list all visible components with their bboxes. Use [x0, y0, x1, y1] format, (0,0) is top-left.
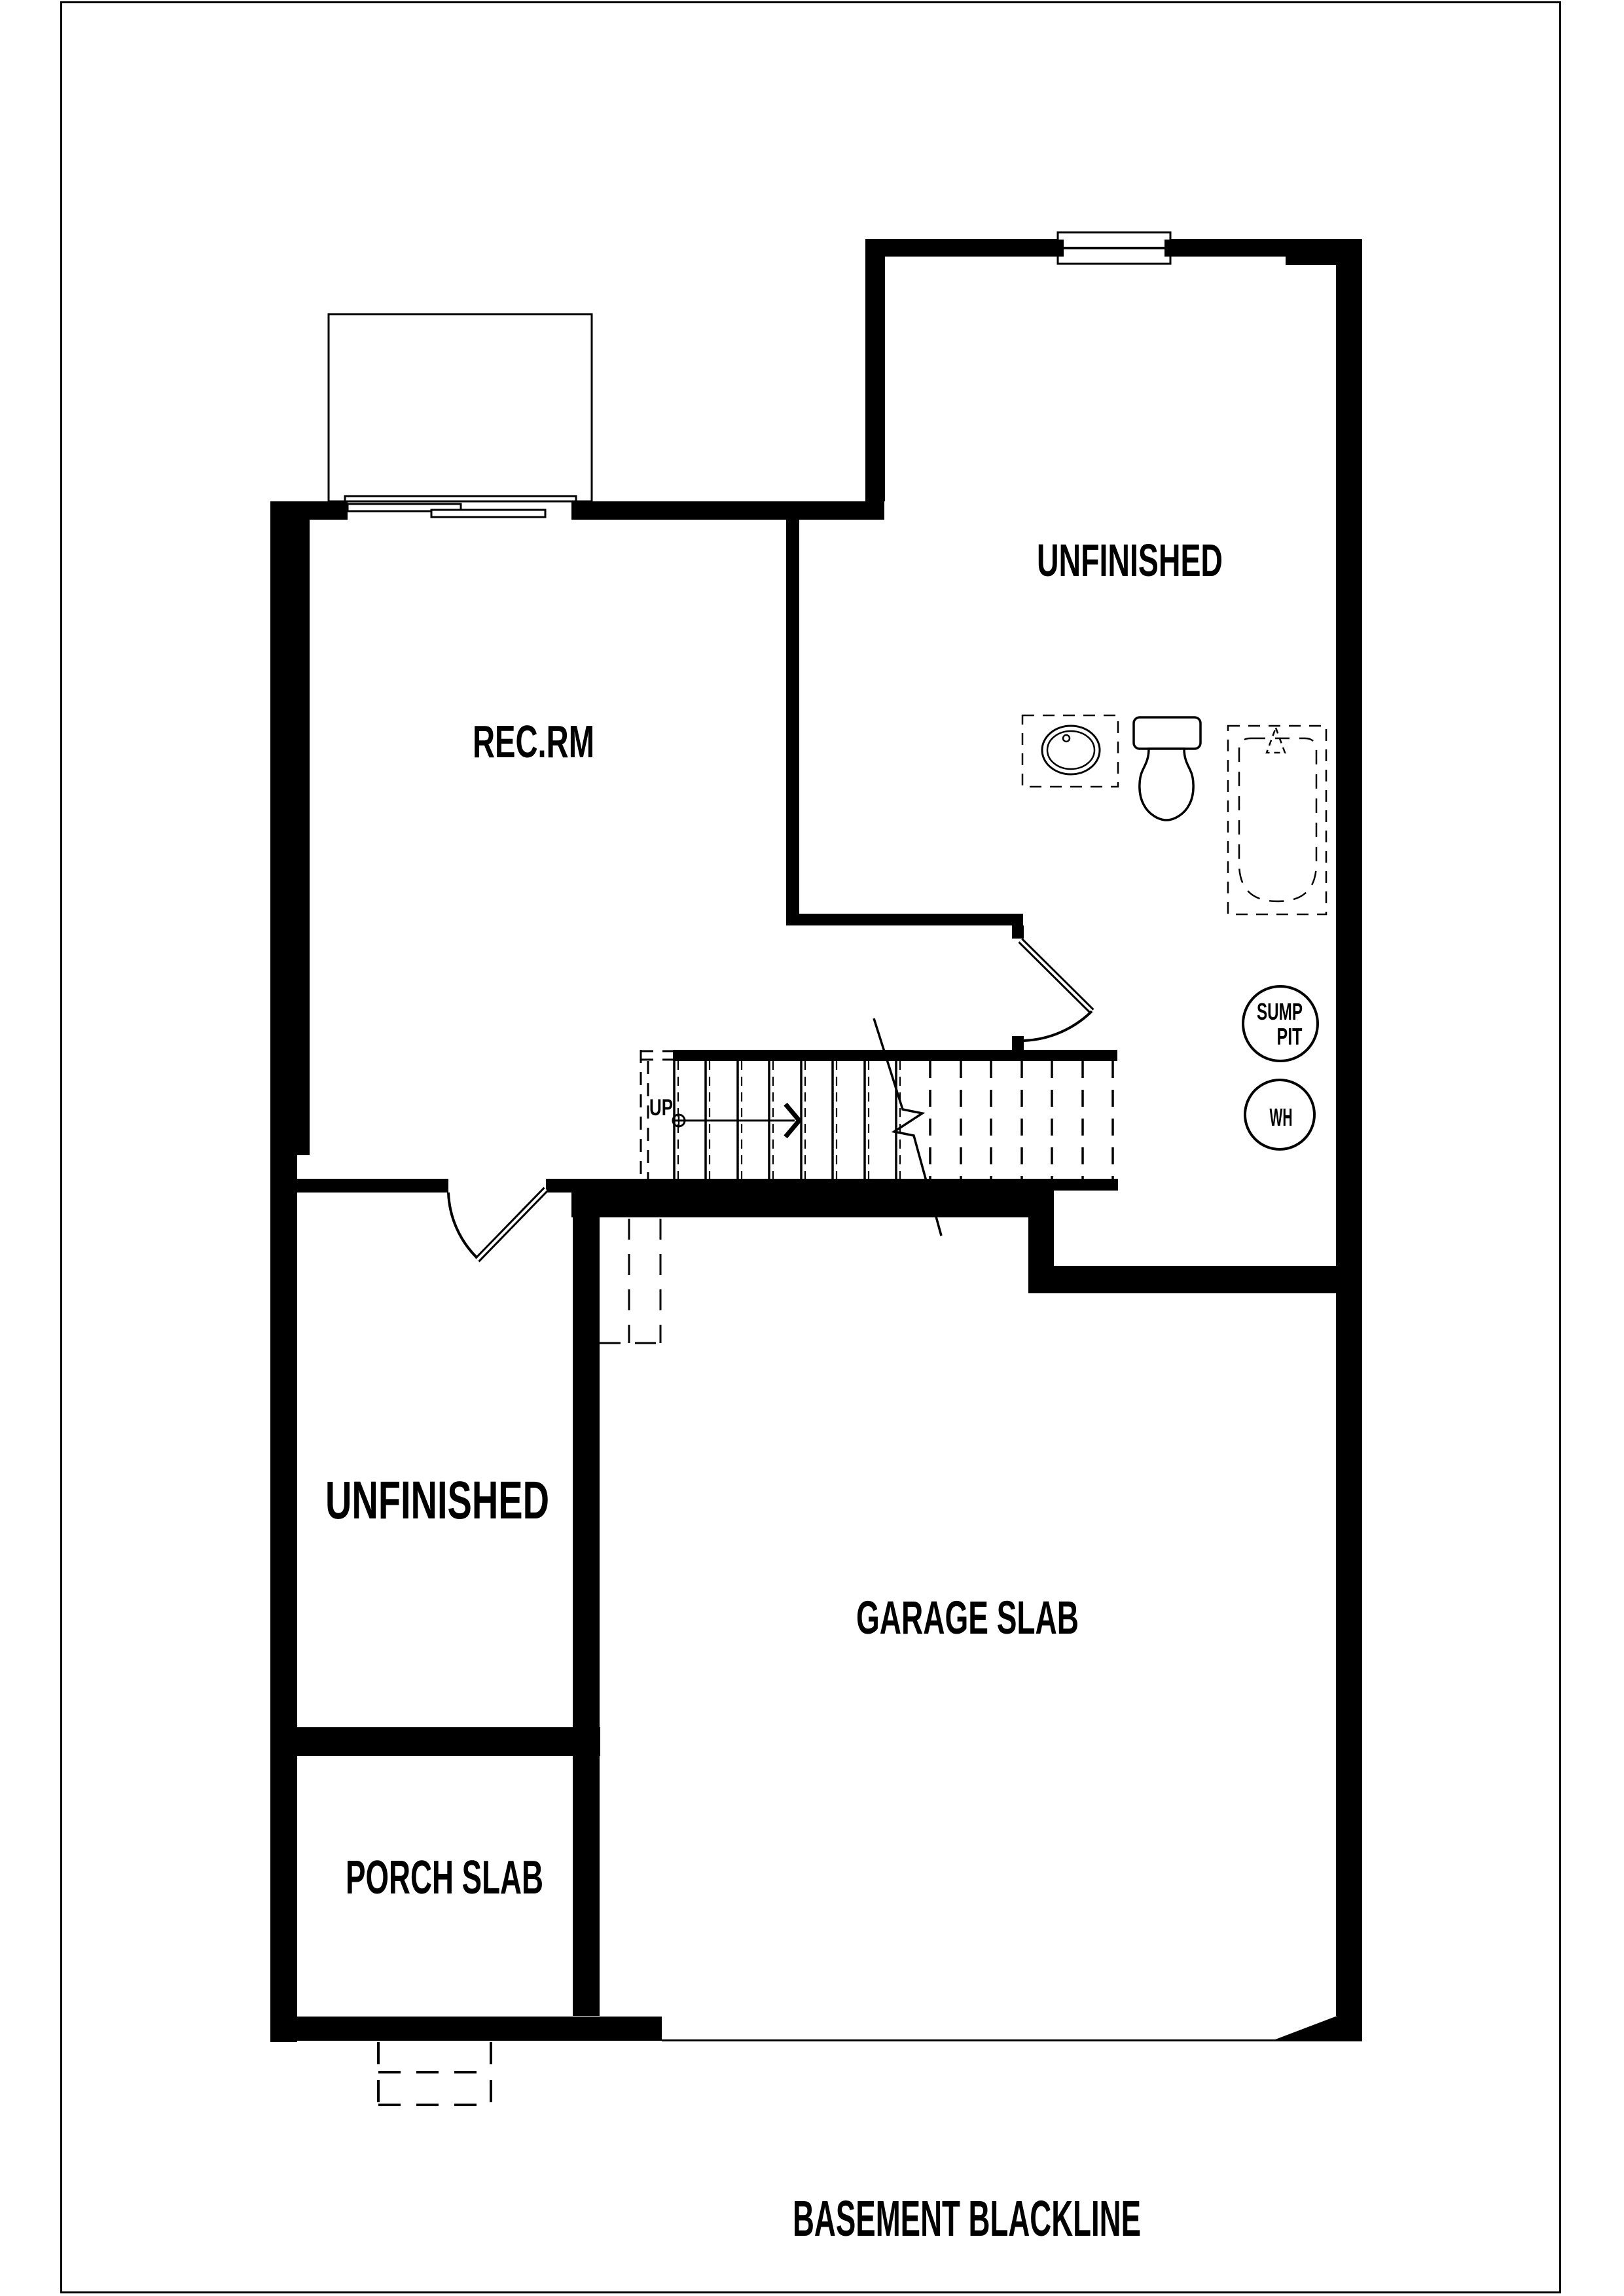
svg-text:BASEMENT BLACKLINE: BASEMENT BLACKLINE — [793, 2191, 1141, 2247]
svg-text:REC.RM: REC.RM — [473, 716, 594, 767]
svg-text:SUMP: SUMP — [1257, 998, 1303, 1025]
svg-text:PORCH SLAB: PORCH SLAB — [346, 1851, 543, 1904]
svg-text:WH: WH — [1270, 1104, 1293, 1132]
svg-text:UNFINISHED: UNFINISHED — [1037, 535, 1223, 586]
svg-text:GARAGE SLAB: GARAGE SLAB — [856, 1592, 1079, 1644]
svg-text:UP: UP — [649, 1095, 673, 1121]
svg-text:PIT: PIT — [1277, 1023, 1303, 1050]
svg-text:UNFINISHED: UNFINISHED — [325, 1471, 549, 1530]
